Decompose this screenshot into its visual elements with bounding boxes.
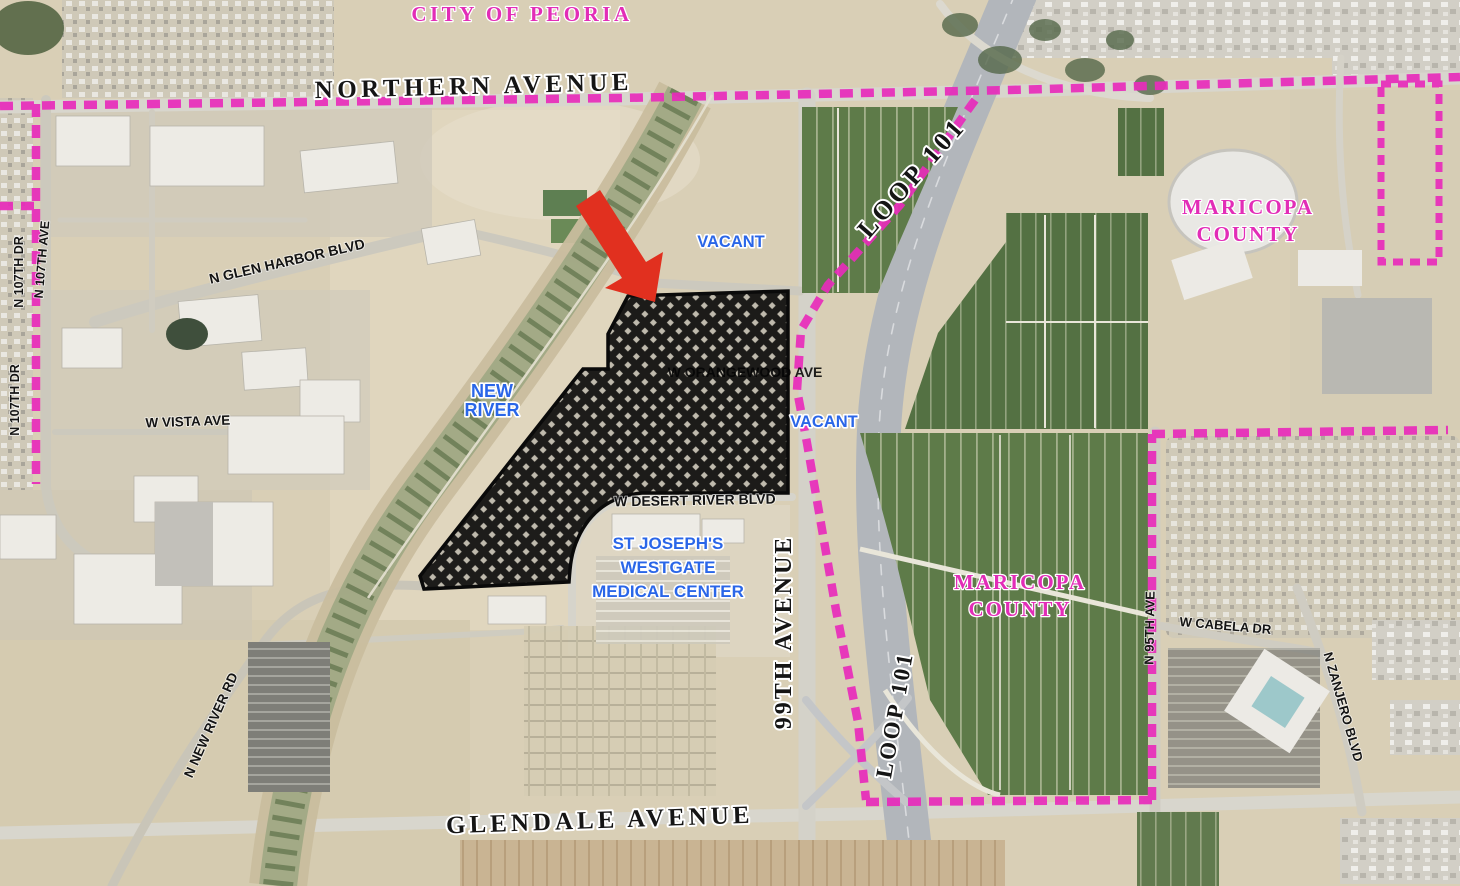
farm-field <box>1118 108 1164 176</box>
label-107th-dr-upper: N 107TH DR <box>12 236 26 308</box>
label-new-river: NEW <box>471 381 513 401</box>
label-st-josephs: WESTGATE <box>620 558 715 577</box>
label-maricopa-county-upper: MARICOPA <box>1182 195 1314 219</box>
label-vacant-east: VACANT <box>790 413 858 431</box>
farm-field <box>1137 812 1219 886</box>
commercial-blocks <box>1340 818 1460 884</box>
label-95th-ave: N 95TH AVE <box>1141 591 1157 665</box>
pond <box>166 318 208 350</box>
aerial-basemap: CITY OF PEORIA NORTHERN AVENUE GLENDALE … <box>0 0 1460 886</box>
plowed-field <box>460 840 1005 886</box>
label-st-josephs: ST JOSEPH'S <box>613 534 724 553</box>
warehouse-roof-half <box>155 502 213 586</box>
label-99th-avenue: 99TH AVENUE <box>771 535 797 730</box>
truck-parking-lot <box>248 642 330 792</box>
nursery-plots <box>524 626 716 796</box>
label-107th-dr-lower: N 107TH DR <box>8 364 22 436</box>
label-maricopa-county-lower: COUNTY <box>968 597 1071 621</box>
label-desert-river-blvd: W DESERT RIVER BLVD <box>614 491 776 510</box>
label-st-josephs: MEDICAL CENTER <box>592 582 744 601</box>
label-maricopa-county-upper: COUNTY <box>1196 222 1299 246</box>
label-new-river: RIVER <box>464 400 519 420</box>
label-vacant-north: VACANT <box>697 233 765 251</box>
label-city-of-peoria: CITY OF PEORIA <box>411 2 632 26</box>
commercial-blocks <box>1372 620 1460 680</box>
aerial-site-map: CITY OF PEORIA NORTHERN AVENUE GLENDALE … <box>0 0 1460 886</box>
commercial-building <box>1298 250 1362 286</box>
commercial-blocks <box>1332 0 1460 82</box>
label-orangewood-ave: W ORANGEWOOD AVE <box>668 364 823 380</box>
commercial-blocks <box>1390 700 1460 755</box>
apartment-blocks <box>1166 436 1460 638</box>
desert-patch <box>0 620 470 886</box>
label-vista-ave: W VISTA AVE <box>145 413 230 431</box>
residential-blocks <box>62 0 334 98</box>
label-maricopa-county-lower: MARICOPA <box>954 570 1086 594</box>
parking-lot <box>1322 298 1432 394</box>
